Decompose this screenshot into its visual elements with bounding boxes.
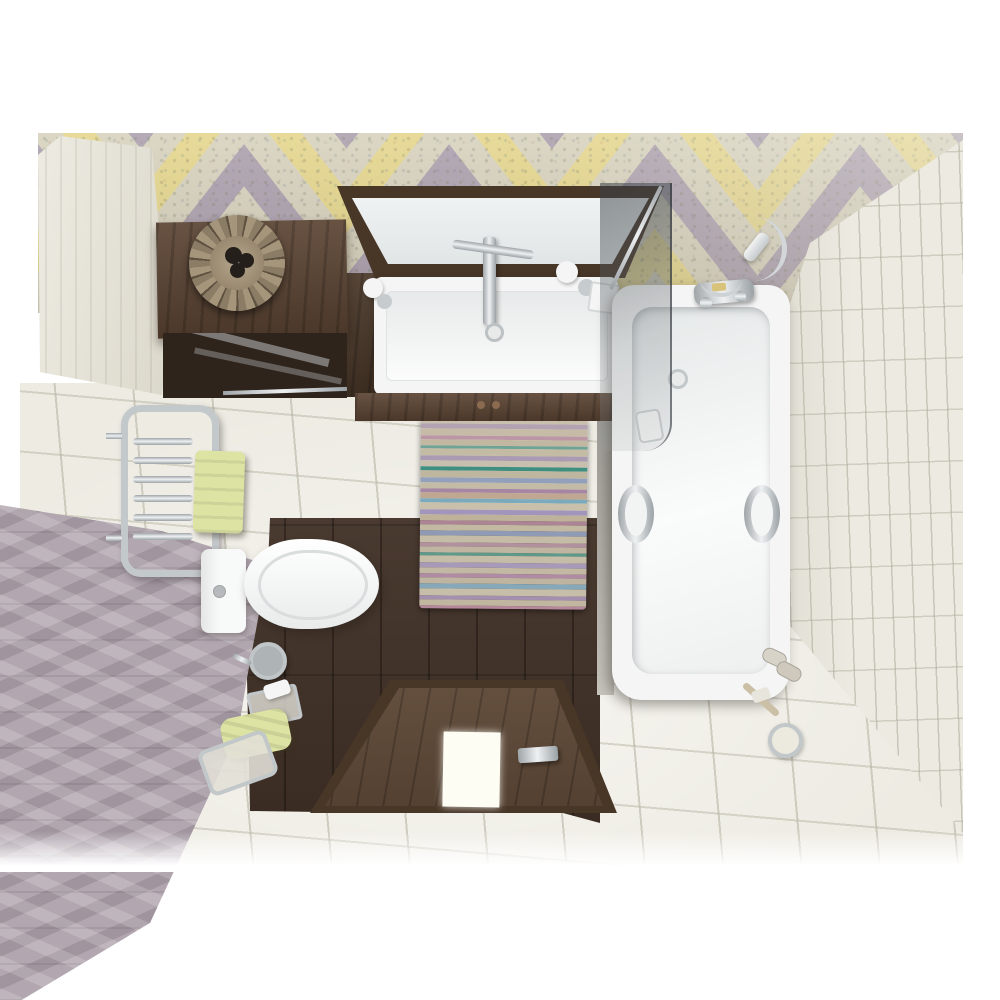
bath-brush-head — [768, 723, 803, 758]
toilet-cistern — [201, 549, 246, 633]
radiator-rung — [133, 495, 193, 502]
cabinet-knob — [492, 401, 500, 409]
radiator-pipe — [106, 433, 122, 439]
radiator-pipe — [106, 535, 122, 541]
wicker-basket — [189, 215, 285, 311]
radiator-rung — [133, 457, 193, 464]
scene-bottom-fade — [0, 831, 963, 872]
tub-grab-handle-left — [618, 485, 654, 543]
flush-button — [213, 585, 226, 598]
toilet-seat — [244, 539, 379, 629]
mixer-knob — [700, 297, 712, 309]
glass-shelf — [163, 333, 347, 398]
toiletry-bottle — [377, 294, 392, 309]
shelf-rail — [223, 387, 347, 395]
radiator-towel — [193, 450, 246, 534]
cabinet-knob — [477, 401, 485, 409]
vanity-cabinet — [355, 393, 640, 421]
handle-cutout — [625, 492, 647, 536]
radiator-rung — [133, 438, 193, 445]
basket-bottle — [230, 263, 245, 278]
page-margin-left — [0, 133, 38, 372]
tub-grab-handle-right — [744, 485, 780, 543]
radiator-rung — [133, 533, 193, 540]
radiator-rung — [133, 476, 193, 483]
toilet-seat-ring — [258, 550, 368, 620]
sink-drain — [485, 323, 504, 342]
shower-hose — [700, 263, 742, 297]
handle-cutout — [751, 492, 773, 536]
cream-tile-wall — [30, 133, 170, 398]
radiator-rung — [133, 514, 193, 521]
glass-shower-screen — [600, 183, 672, 451]
door-glass-insert — [442, 732, 500, 808]
toiletry-bottle — [556, 261, 578, 283]
toilet-brush — [249, 642, 287, 680]
bathroom-render — [0, 0, 1000, 1000]
scene — [0, 133, 963, 872]
glass-reflection — [194, 347, 342, 384]
door-handle — [518, 746, 559, 764]
mixer-knob — [735, 291, 746, 302]
striped-rug — [419, 417, 588, 609]
